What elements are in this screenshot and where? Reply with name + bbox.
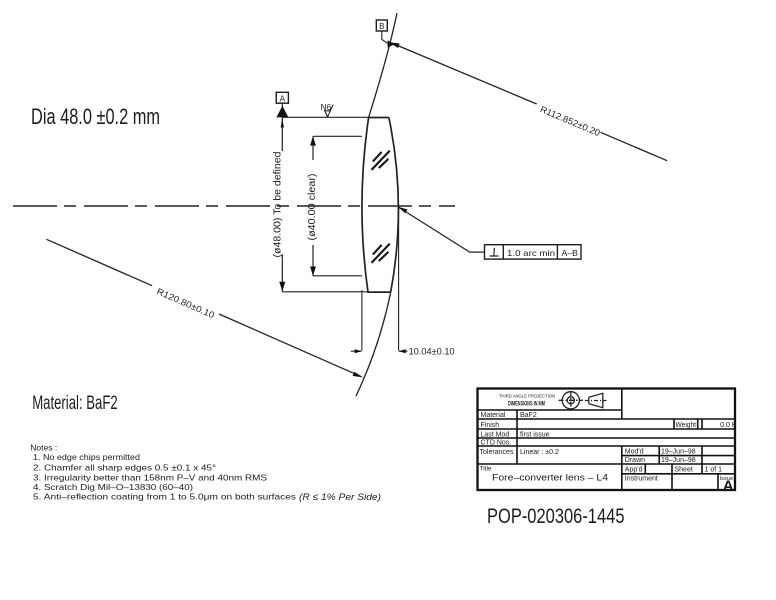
svg-text:POP-020306-1445: POP-020306-1445: [487, 505, 625, 528]
svg-text:Sheet: Sheet: [675, 466, 693, 473]
svg-text:Dia 48.0 ±0.2 mm: Dia 48.0 ±0.2 mm: [31, 104, 160, 129]
svg-text:19–Jun–98: 19–Jun–98: [661, 449, 696, 456]
svg-text:App'd: App'd: [625, 466, 643, 473]
svg-text:CTD Nos.: CTD Nos.: [481, 440, 512, 447]
svg-text:Mod'd: Mod'd: [625, 449, 644, 456]
svg-text:0.0 K: 0.0 K: [720, 422, 737, 429]
svg-text:Weight: Weight: [676, 422, 697, 429]
svg-text:Material: BaF2: Material: BaF2: [32, 393, 118, 414]
svg-text:A: A: [279, 94, 285, 104]
svg-text:Drawn: Drawn: [625, 457, 645, 464]
svg-text:THIRD ANGLE PROJECTION: THIRD ANGLE PROJECTION: [499, 394, 555, 399]
svg-text:A–B: A–B: [562, 249, 579, 258]
svg-text:1 of 1: 1 of 1: [705, 466, 723, 473]
svg-text:DIMENSIONS IN MM: DIMENSIONS IN MM: [508, 401, 545, 407]
svg-text:Linear : ±0.2: Linear : ±0.2: [520, 449, 559, 456]
svg-text:(ø40.00 clear): (ø40.00 clear): [307, 174, 318, 241]
svg-text:5. Anti–reflection coating f: 5. Anti–reflection coating from 1 to 5.0…: [33, 491, 296, 501]
svg-text:(ø48.00) To be defined: (ø48.00) To be defined: [273, 152, 284, 258]
svg-text:first issue: first issue: [520, 431, 550, 438]
svg-text:4. Scratch Dig Mil–O–13830: 4. Scratch Dig Mil–O–13830 (60–40): [33, 482, 193, 492]
svg-text:19–Jun–98: 19–Jun–98: [661, 457, 696, 464]
svg-text:Title: Title: [480, 465, 492, 472]
svg-text:10.04±0.10: 10.04±0.10: [409, 347, 455, 357]
svg-text:3. Irregularity better than 1: 3. Irregularity better than 158nm P–V an…: [33, 472, 267, 482]
svg-text:BaF2: BaF2: [520, 412, 537, 419]
svg-text:1. No edge chips permitted: 1. No edge chips permitted: [33, 452, 140, 462]
svg-text:Tolerances: Tolerances: [480, 449, 514, 456]
svg-text:A: A: [723, 478, 734, 495]
svg-text:1.0 arc min: 1.0 arc min: [507, 249, 556, 258]
svg-text:Material: Material: [481, 412, 506, 419]
svg-text:(R ≤ 1% Per Side): (R ≤ 1% Per Side): [299, 492, 381, 503]
svg-text:Instrument: Instrument: [625, 475, 658, 482]
svg-text:B: B: [379, 22, 384, 31]
svg-text:Last Mod: Last Mod: [481, 431, 510, 438]
svg-text:Finish: Finish: [481, 422, 500, 429]
svg-text:2. Chamfer all sharp edges 0: 2. Chamfer all sharp edges 0.5 ±0.1 x 45…: [33, 462, 216, 472]
svg-text:Fore–converter lens – L4: Fore–converter lens – L4: [492, 472, 608, 482]
